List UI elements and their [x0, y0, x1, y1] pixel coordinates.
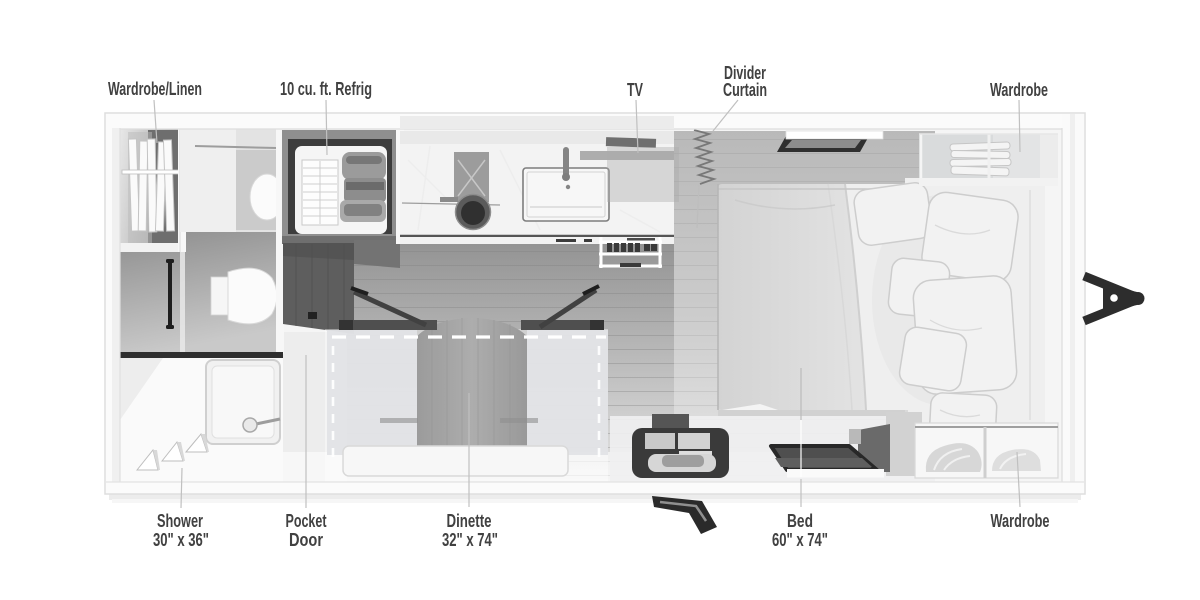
svg-text:Door: Door	[289, 530, 323, 550]
svg-text:Curtain: Curtain	[723, 80, 767, 100]
svg-text:32" x 74": 32" x 74"	[442, 530, 498, 550]
svg-text:TV: TV	[627, 80, 643, 100]
svg-text:Bed: Bed	[787, 511, 813, 531]
svg-text:30" x 36": 30" x 36"	[153, 530, 209, 550]
svg-text:Dinette: Dinette	[447, 511, 492, 531]
svg-text:Wardrobe/Linen: Wardrobe/Linen	[108, 79, 202, 99]
svg-text:60" x 74": 60" x 74"	[772, 530, 828, 550]
svg-text:10 cu. ft. Refrig: 10 cu. ft. Refrig	[280, 79, 372, 99]
svg-text:Pocket: Pocket	[286, 511, 327, 531]
svg-text:Shower: Shower	[157, 511, 203, 531]
svg-text:Wardrobe: Wardrobe	[991, 511, 1050, 531]
svg-text:Wardrobe: Wardrobe	[990, 80, 1048, 100]
